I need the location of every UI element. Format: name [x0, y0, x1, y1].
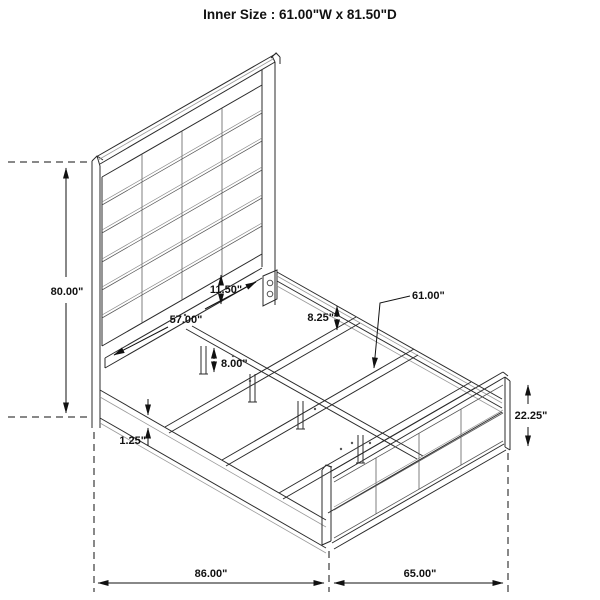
hardware-dot — [351, 442, 353, 444]
overall-length-label: 86.00" — [195, 568, 228, 580]
hardware-dot — [369, 442, 371, 444]
headboard-height-label: 80.00" — [51, 286, 84, 298]
footboard-height-label: 22.25" — [515, 410, 548, 422]
hardware-dot — [232, 355, 234, 357]
panel-gap-label: 11.50" — [210, 284, 242, 296]
hardware-dot — [340, 448, 342, 450]
panel-width-label: 57.00" — [170, 314, 203, 326]
canvas-background — [0, 0, 600, 600]
inner-width-label: 61.00" — [412, 290, 445, 302]
overall-width-label: 65.00" — [404, 568, 437, 580]
rail-height-label: 8.25" — [307, 312, 334, 324]
leg-height-label: 8.00" — [221, 358, 248, 370]
bed-dimension-drawing: 80.00" 57.00" 11.50" 8.25" 61.00" 8.00" … — [0, 0, 600, 600]
hardware-dot — [314, 408, 316, 410]
page-title: Inner Size : 61.00"W x 81.50"D — [203, 7, 397, 22]
rail-lip-label: 1.25" — [119, 435, 146, 447]
bed-dimension-diagram-page: 80.00" 57.00" 11.50" 8.25" 61.00" 8.00" … — [0, 0, 600, 600]
hardware-dot — [249, 380, 251, 382]
